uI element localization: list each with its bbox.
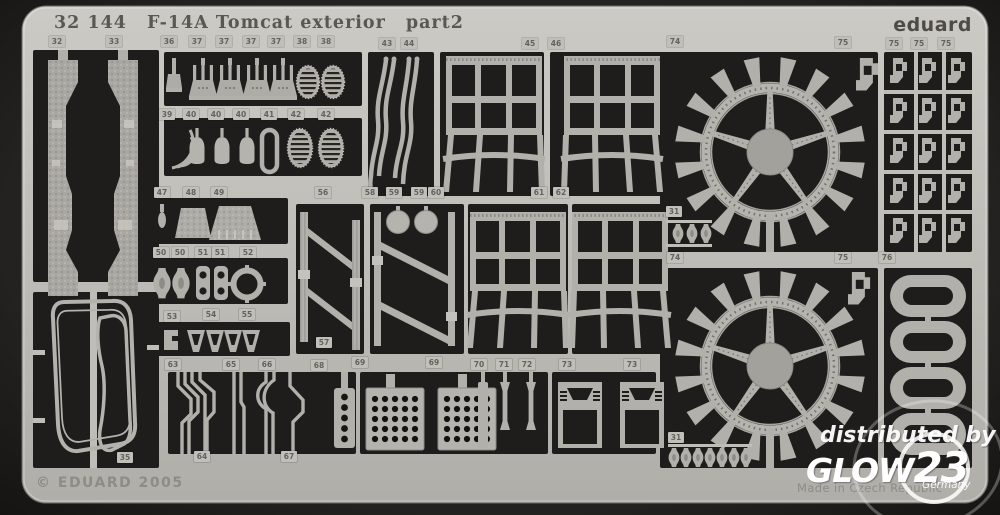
part-number-label: 37 (216, 36, 232, 47)
part-number-label: 54 (203, 309, 219, 320)
part-number-label: 37 (243, 36, 259, 47)
part-number-label: 50 (153, 247, 169, 258)
part-number-label: 42 (288, 109, 304, 120)
part-number-label: 37 (189, 36, 205, 47)
part-number-label: 48 (183, 187, 199, 198)
part-number-label: 70 (471, 359, 487, 370)
part-number-label: 73 (559, 359, 575, 370)
part-number-label: 39 (159, 109, 175, 120)
copyright-text: © EDUARD 2005 (36, 475, 184, 491)
part-number-label: 75 (835, 37, 851, 48)
part-number-label: 69 (352, 357, 368, 368)
part-number-label: 32 (49, 36, 65, 47)
made-in-text: Made in Czech Republic (797, 481, 943, 495)
part-number-label: 44 (401, 38, 417, 49)
part-number-label: 45 (522, 38, 538, 49)
part-number-label: 58 (362, 187, 378, 198)
part-number-label: 64 (194, 451, 210, 462)
part-number-label: 60 (428, 187, 444, 198)
part-number-label: 62 (553, 187, 569, 198)
part-number-label: 63 (165, 359, 181, 370)
part-number-label: 31 (666, 206, 682, 217)
sheet-header: 32 144F-14A Tomcat exteriorpart2 (54, 13, 484, 33)
product-photo: 32 144F-14A Tomcat exteriorpart2 eduard … (0, 0, 1000, 515)
part-number-label: 69 (426, 357, 442, 368)
part-number-label: 36 (161, 36, 177, 47)
part-number-label: 74 (667, 252, 683, 263)
sheet-title: F-14A Tomcat exterior (147, 13, 386, 33)
part-number-label: 67 (281, 451, 297, 462)
part-number-label: 31 (668, 432, 684, 443)
part-number-label: 41 (261, 109, 277, 120)
part-number-label: 72 (519, 359, 535, 370)
part-number-label: 51 (212, 247, 228, 258)
part-number-label: 75 (938, 38, 954, 49)
part-number-label: 37 (268, 36, 284, 47)
catalog-number: 32 144 (54, 13, 127, 33)
part-number-label: 74 (667, 36, 683, 47)
part-number-label: 52 (240, 247, 256, 258)
part-number-label: 42 (318, 109, 334, 120)
part-number-label: 38 (318, 36, 334, 47)
part-number-label: 71 (496, 359, 512, 370)
part-number-label: 43 (379, 38, 395, 49)
part-number-label: 55 (239, 309, 255, 320)
part-number-label: 56 (315, 187, 331, 198)
part-73-bracket (620, 382, 664, 448)
part-number-label: 40 (233, 109, 249, 120)
part-number-label: 59 (411, 187, 427, 198)
part-number-label: 50 (172, 247, 188, 258)
part-number-label: 66 (259, 359, 275, 370)
sheet-part: part2 (406, 13, 464, 33)
part-73-bracket (558, 382, 602, 448)
part-number-label: 53 (164, 311, 180, 322)
part-number-label: 68 (311, 360, 327, 371)
part-number-label: 75 (886, 38, 902, 49)
part-number-label: 59 (386, 187, 402, 198)
part-number-label: 40 (183, 109, 199, 120)
part-number-label: 65 (223, 359, 239, 370)
part-number-label: 73 (624, 359, 640, 370)
part-number-label: 57 (316, 337, 332, 348)
brand-logo: eduard (872, 14, 972, 36)
part-number-label: 40 (208, 109, 224, 120)
part-number-label: 51 (195, 247, 211, 258)
part-number-label: 35 (117, 452, 133, 463)
part-number-label: 46 (548, 38, 564, 49)
part-number-label: 38 (294, 36, 310, 47)
part-number-label: 33 (106, 36, 122, 47)
part-number-label: 49 (211, 187, 227, 198)
part-number-label: 76 (879, 252, 895, 263)
part-number-label: 75 (911, 38, 927, 49)
part-number-label: 75 (835, 252, 851, 263)
part-number-label: 61 (531, 187, 547, 198)
part-number-label: 47 (154, 187, 170, 198)
